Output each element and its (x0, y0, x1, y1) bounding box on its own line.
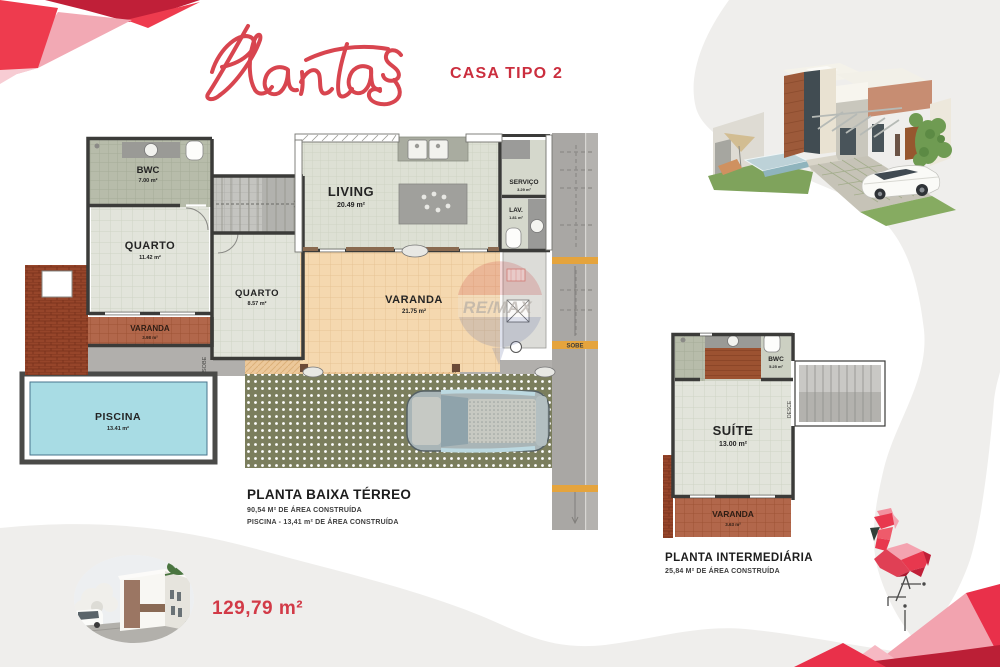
svg-text:21.75 m²: 21.75 m² (402, 308, 426, 315)
svg-text:11.42 m²: 11.42 m² (139, 254, 161, 261)
svg-text:25,84 M² DE ÁREA CONSTRUÍDA: 25,84 M² DE ÁREA CONSTRUÍDA (665, 566, 780, 575)
svg-text:PLANTA INTERMEDIÁRIA: PLANTA INTERMEDIÁRIA (665, 551, 813, 564)
svg-text:VARANDA: VARANDA (385, 294, 443, 306)
svg-text:SOBE: SOBE (566, 344, 583, 350)
svg-text:PLANTA BAIXA TÉRREO: PLANTA BAIXA TÉRREO (247, 487, 411, 502)
svg-text:LIVING: LIVING (328, 184, 374, 199)
svg-text:LAV.: LAV. (509, 207, 523, 214)
svg-text:PISCINA: PISCINA (95, 411, 141, 423)
svg-text:SUÍTE: SUÍTE (713, 423, 754, 438)
svg-text:SOBE: SOBE (202, 356, 208, 372)
svg-text:8.57 m²: 8.57 m² (248, 300, 267, 307)
svg-text:VARANDA: VARANDA (712, 509, 754, 519)
svg-text:BWC: BWC (137, 165, 160, 176)
svg-text:129,79 m²: 129,79 m² (212, 598, 303, 619)
svg-text:SERVIÇO: SERVIÇO (509, 179, 538, 186)
svg-text:13.41 m²: 13.41 m² (107, 425, 129, 432)
svg-text:RE/MAX: RE/MAX (463, 298, 533, 317)
svg-text:1.81 m²: 1.81 m² (509, 215, 523, 220)
svg-text:13.00 m²: 13.00 m² (719, 441, 748, 448)
svg-text:QUARTO: QUARTO (235, 288, 279, 299)
svg-text:7.00 m²: 7.00 m² (139, 177, 158, 184)
svg-text:3.98 m²: 3.98 m² (142, 335, 158, 340)
svg-text:DESCE: DESCE (787, 400, 793, 418)
svg-text:20.49 m²: 20.49 m² (337, 202, 366, 209)
svg-text:5.25 m²: 5.25 m² (769, 364, 783, 369)
svg-text:3.29 m²: 3.29 m² (517, 187, 531, 192)
svg-text:VARANDA: VARANDA (130, 324, 170, 333)
svg-text:CASA TIPO 2: CASA TIPO 2 (450, 65, 563, 82)
svg-text:PISCINA - 13,41 m² DE ÁREA CON: PISCINA - 13,41 m² DE ÁREA CONSTRUÍDA (247, 517, 399, 526)
svg-text:QUARTO: QUARTO (125, 240, 175, 252)
svg-text:90,54 M² DE ÁREA CONSTRUÍDA: 90,54 M² DE ÁREA CONSTRUÍDA (247, 505, 362, 514)
svg-text:BWC: BWC (768, 356, 784, 363)
svg-text:3.63 m²: 3.63 m² (725, 522, 741, 527)
